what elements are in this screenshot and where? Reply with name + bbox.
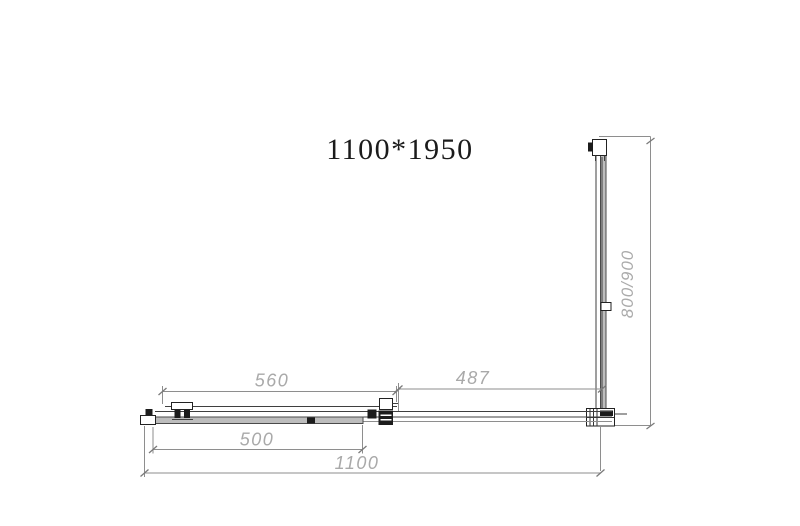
junction-block	[379, 411, 394, 426]
roller-wheel	[175, 410, 181, 418]
sliding-glass-door	[152, 417, 363, 424]
dim-label-487: 487	[456, 368, 491, 388]
dim-label-560: 560	[255, 371, 290, 391]
roller-wheel	[184, 410, 190, 418]
dim-label-side-depth: 800/900	[618, 250, 637, 318]
roller-carriage	[172, 403, 193, 410]
side-glass-panel	[601, 156, 607, 412]
dimension-487-group: 487	[395, 368, 607, 411]
dimension-560-group: 560	[159, 371, 401, 405]
junction-clamp	[368, 410, 377, 419]
door-mid-connector	[307, 418, 315, 424]
technical-drawing-canvas: 1100*1950	[0, 0, 800, 526]
left-wall-profile	[141, 416, 156, 425]
dim-label-1100: 1100	[335, 453, 380, 473]
dim-label-500: 500	[240, 430, 275, 450]
dimension-1100-group: 1100	[141, 426, 605, 477]
junction-roller-housing	[380, 399, 393, 410]
side-top-bracket-clamp	[588, 143, 593, 152]
side-mid-clamp	[601, 303, 611, 311]
dimension-500-group: 500	[149, 425, 367, 454]
left-wall-profile-clamp	[146, 409, 153, 416]
drawing-title: 1100*1950	[326, 133, 473, 166]
side-panel-group: 800/900	[587, 137, 655, 430]
drawing-page: 1100*1950	[0, 0, 800, 526]
door-assembly-group	[141, 399, 613, 426]
side-top-bracket	[593, 140, 607, 156]
